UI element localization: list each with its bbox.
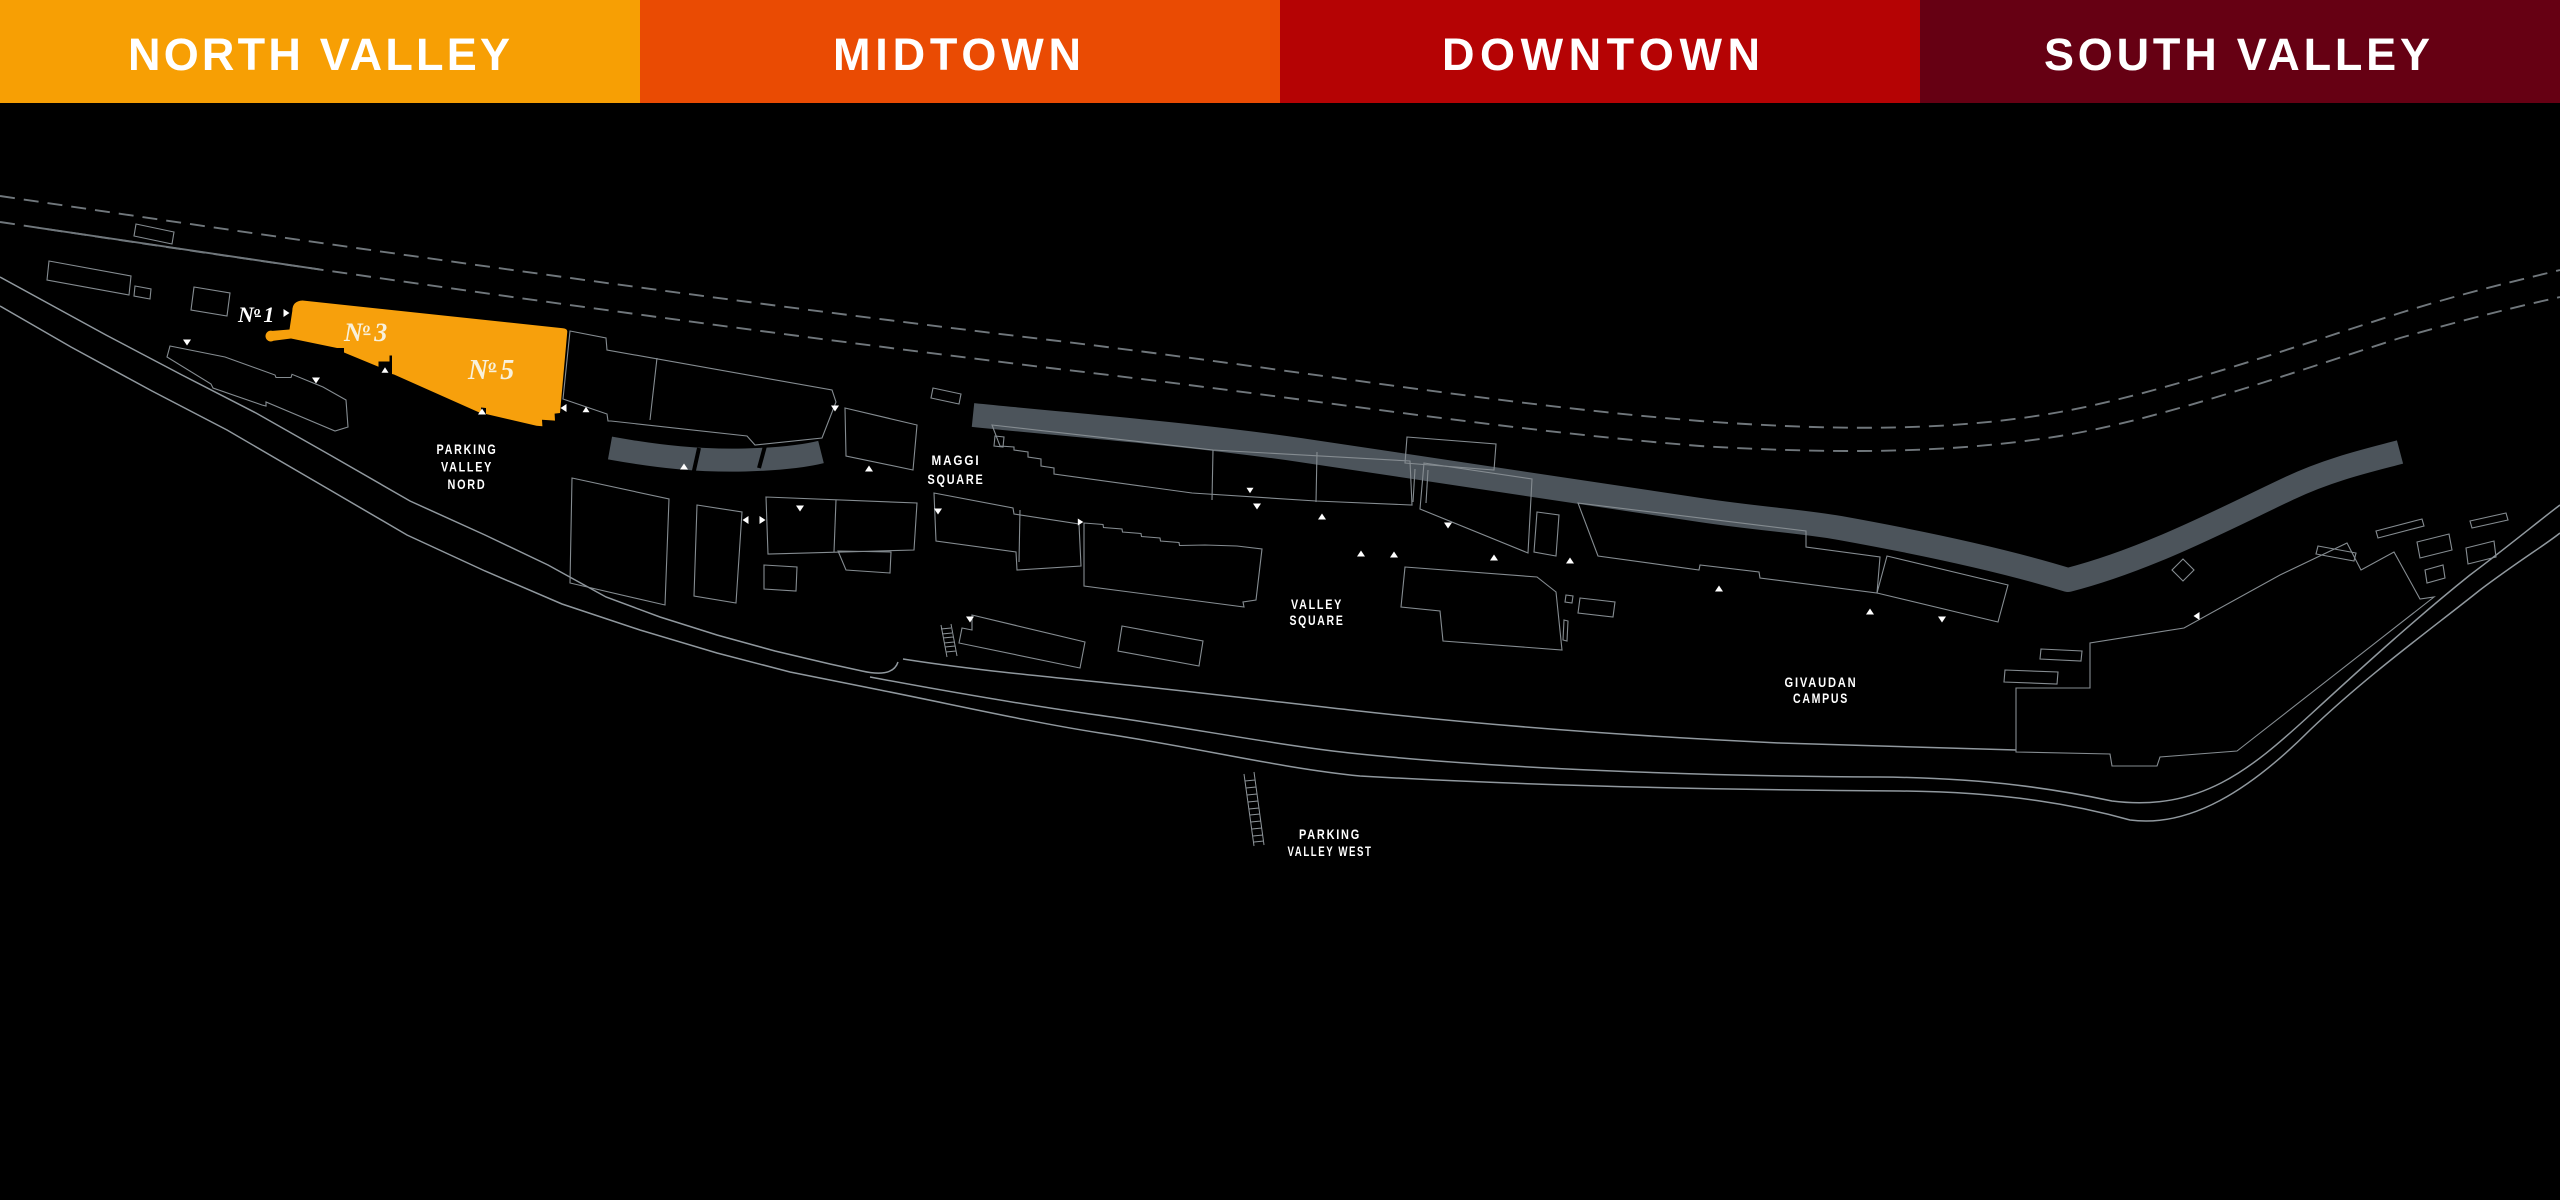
svg-text:VALLEY WEST: VALLEY WEST bbox=[1288, 844, 1373, 859]
svg-text:VALLEY: VALLEY bbox=[1291, 597, 1343, 612]
svg-text:PARKING: PARKING bbox=[1299, 827, 1361, 842]
svg-text:MAGGI: MAGGI bbox=[932, 453, 981, 468]
svg-text:SQUARE: SQUARE bbox=[928, 472, 985, 487]
svg-text:SQUARE: SQUARE bbox=[1290, 613, 1345, 628]
svg-text:DOWNTOWN: DOWNTOWN bbox=[1442, 29, 1760, 80]
svg-text:NORD: NORD bbox=[448, 477, 487, 492]
svg-text:PARKING: PARKING bbox=[437, 442, 498, 457]
svg-text:GIVAUDAN: GIVAUDAN bbox=[1785, 675, 1858, 690]
svg-text:CAMPUS: CAMPUS bbox=[1793, 691, 1849, 706]
svg-text:SOUTH VALLEY: SOUTH VALLEY bbox=[2044, 29, 2430, 80]
svg-text:VALLEY: VALLEY bbox=[441, 460, 493, 475]
svg-text:NORTH VALLEY: NORTH VALLEY bbox=[128, 29, 510, 80]
